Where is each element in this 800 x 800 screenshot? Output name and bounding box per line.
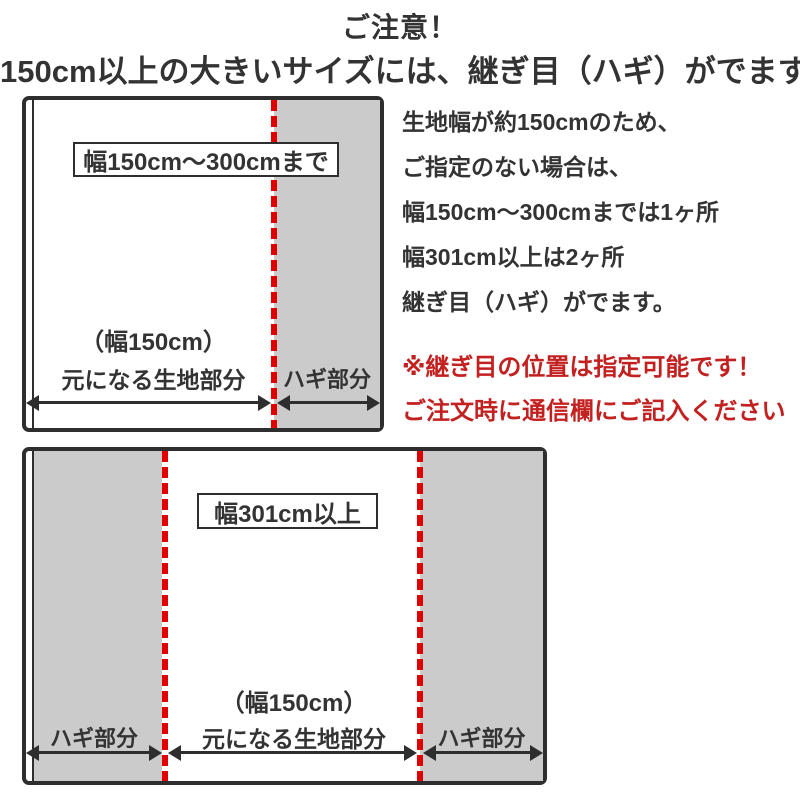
arrow-line <box>177 751 408 754</box>
size-range-label-box: 幅301cm以上 <box>197 493 378 529</box>
explanation-line: 幅150cm〜300cmまでは1ヶ所 <box>402 190 719 235</box>
hagi-label: ハギ部分 <box>274 368 380 392</box>
size-range-label: 幅301cm以上 <box>214 494 361 529</box>
hagi-width-arrow-right <box>423 745 543 761</box>
notice-line: ご注文時に通信欄にご記入ください <box>402 390 786 434</box>
base-fabric-label: 元になる生地部分 <box>34 368 273 393</box>
page-subtitle: 150cm以上の大きいサイズには、継ぎ目（ハギ）がでます <box>0 46 800 91</box>
explanation-line: 継ぎ目（ハギ）がでます。 <box>402 280 719 325</box>
base-width-arrow <box>26 395 271 411</box>
explanation-line: ご指定のない場合は、 <box>402 145 719 190</box>
base-width-label: （幅150cm） <box>34 330 273 356</box>
arrow-line <box>432 751 534 754</box>
base-width-arrow <box>168 745 417 761</box>
fabric-diagram-150-300: 幅150cm〜300cmまで （幅150cm） 元になる生地部分 ハギ部分 <box>22 96 384 432</box>
arrow-line <box>35 401 262 404</box>
size-range-label: 幅150cm〜300cmまで <box>83 142 328 177</box>
explanation-line: 生地幅が約150cmのため、 <box>402 100 719 145</box>
hagi-width-arrow-left <box>26 745 162 761</box>
seam-position-notice: ※継ぎ目の位置は指定可能です！ ご注文時に通信欄にご記入ください <box>402 346 786 434</box>
fabric-diagram-301-plus: 幅301cm以上 （幅150cm） 元になる生地部分 ハギ部分 ハギ部分 <box>22 447 547 785</box>
size-range-label-box: 幅150cm〜300cmまで <box>73 142 339 177</box>
arrow-line <box>35 751 153 754</box>
explanation-text-block: 生地幅が約150cmのため、 ご指定のない場合は、 幅150cm〜300cmまで… <box>402 100 719 325</box>
page-title: ご注意！ <box>0 6 800 46</box>
explanation-line: 幅301cm以上は2ヶ所 <box>402 235 719 280</box>
arrow-line <box>286 401 371 404</box>
base-width-label: （幅150cm） <box>168 691 420 717</box>
notice-line: ※継ぎ目の位置は指定可能です！ <box>402 346 786 390</box>
hagi-width-arrow <box>277 395 380 411</box>
